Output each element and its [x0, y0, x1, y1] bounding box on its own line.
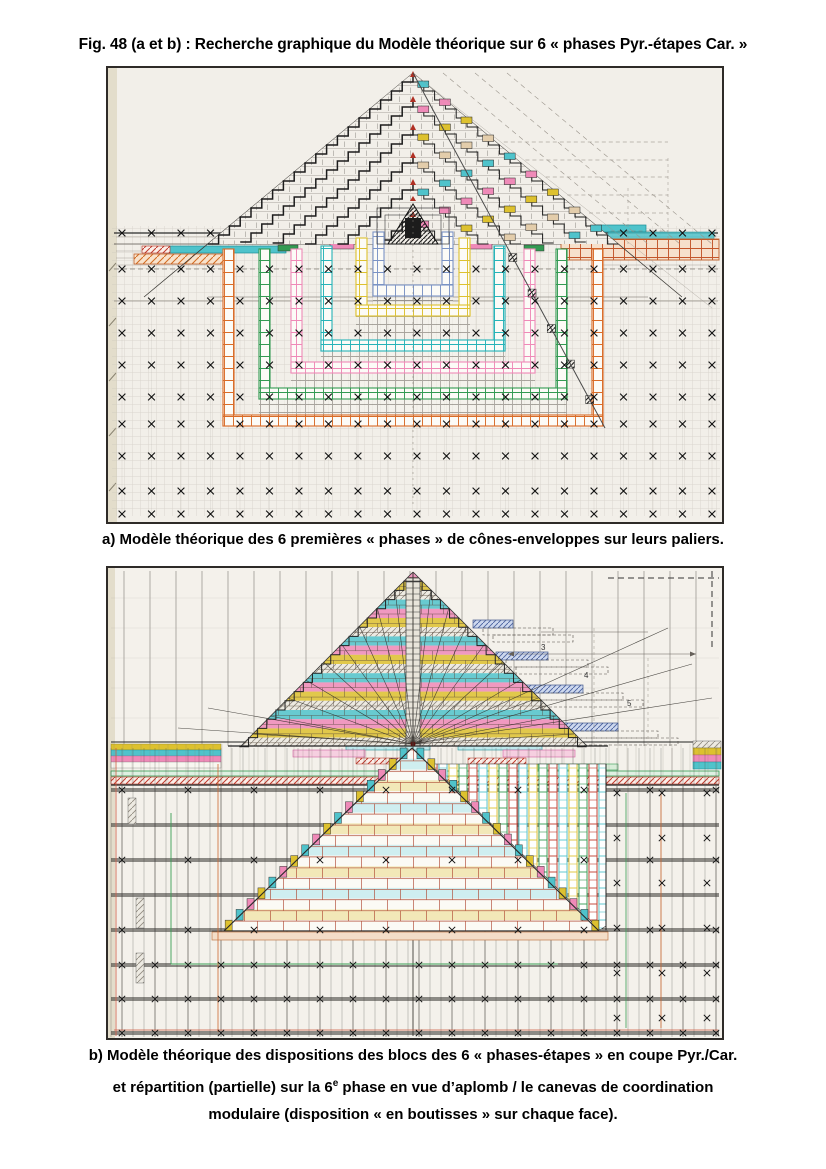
figure-title: Fig. 48 (a et b) : Recherche graphique d…: [0, 36, 826, 54]
page: Fig. 48 (a et b) : Recherche graphique d…: [0, 0, 826, 1169]
phase-step-label: 4: [584, 671, 589, 680]
caption-b-line2: et répartition (partielle) sur la 6e pha…: [0, 1070, 826, 1102]
caption-b-line1: b) Modèle théorique des dispositions des…: [0, 1042, 826, 1070]
figure-b-frame: 345: [106, 566, 724, 1040]
phase-step-label: 3: [541, 643, 546, 652]
figure-b-art: 345: [108, 568, 722, 1038]
caption-b: b) Modèle théorique des dispositions des…: [0, 1042, 826, 1129]
phase-step-label: 5: [627, 699, 632, 708]
figure-a-art: [108, 68, 722, 522]
caption-b-line3: modulaire (disposition « en boutisses » …: [0, 1101, 826, 1129]
figure-b-drawing: 345: [108, 568, 722, 1038]
figure-a-drawing: [108, 68, 722, 522]
caption-a: a) Modèle théorique des 6 premières « ph…: [0, 531, 826, 548]
figure-a-frame: [106, 66, 724, 524]
